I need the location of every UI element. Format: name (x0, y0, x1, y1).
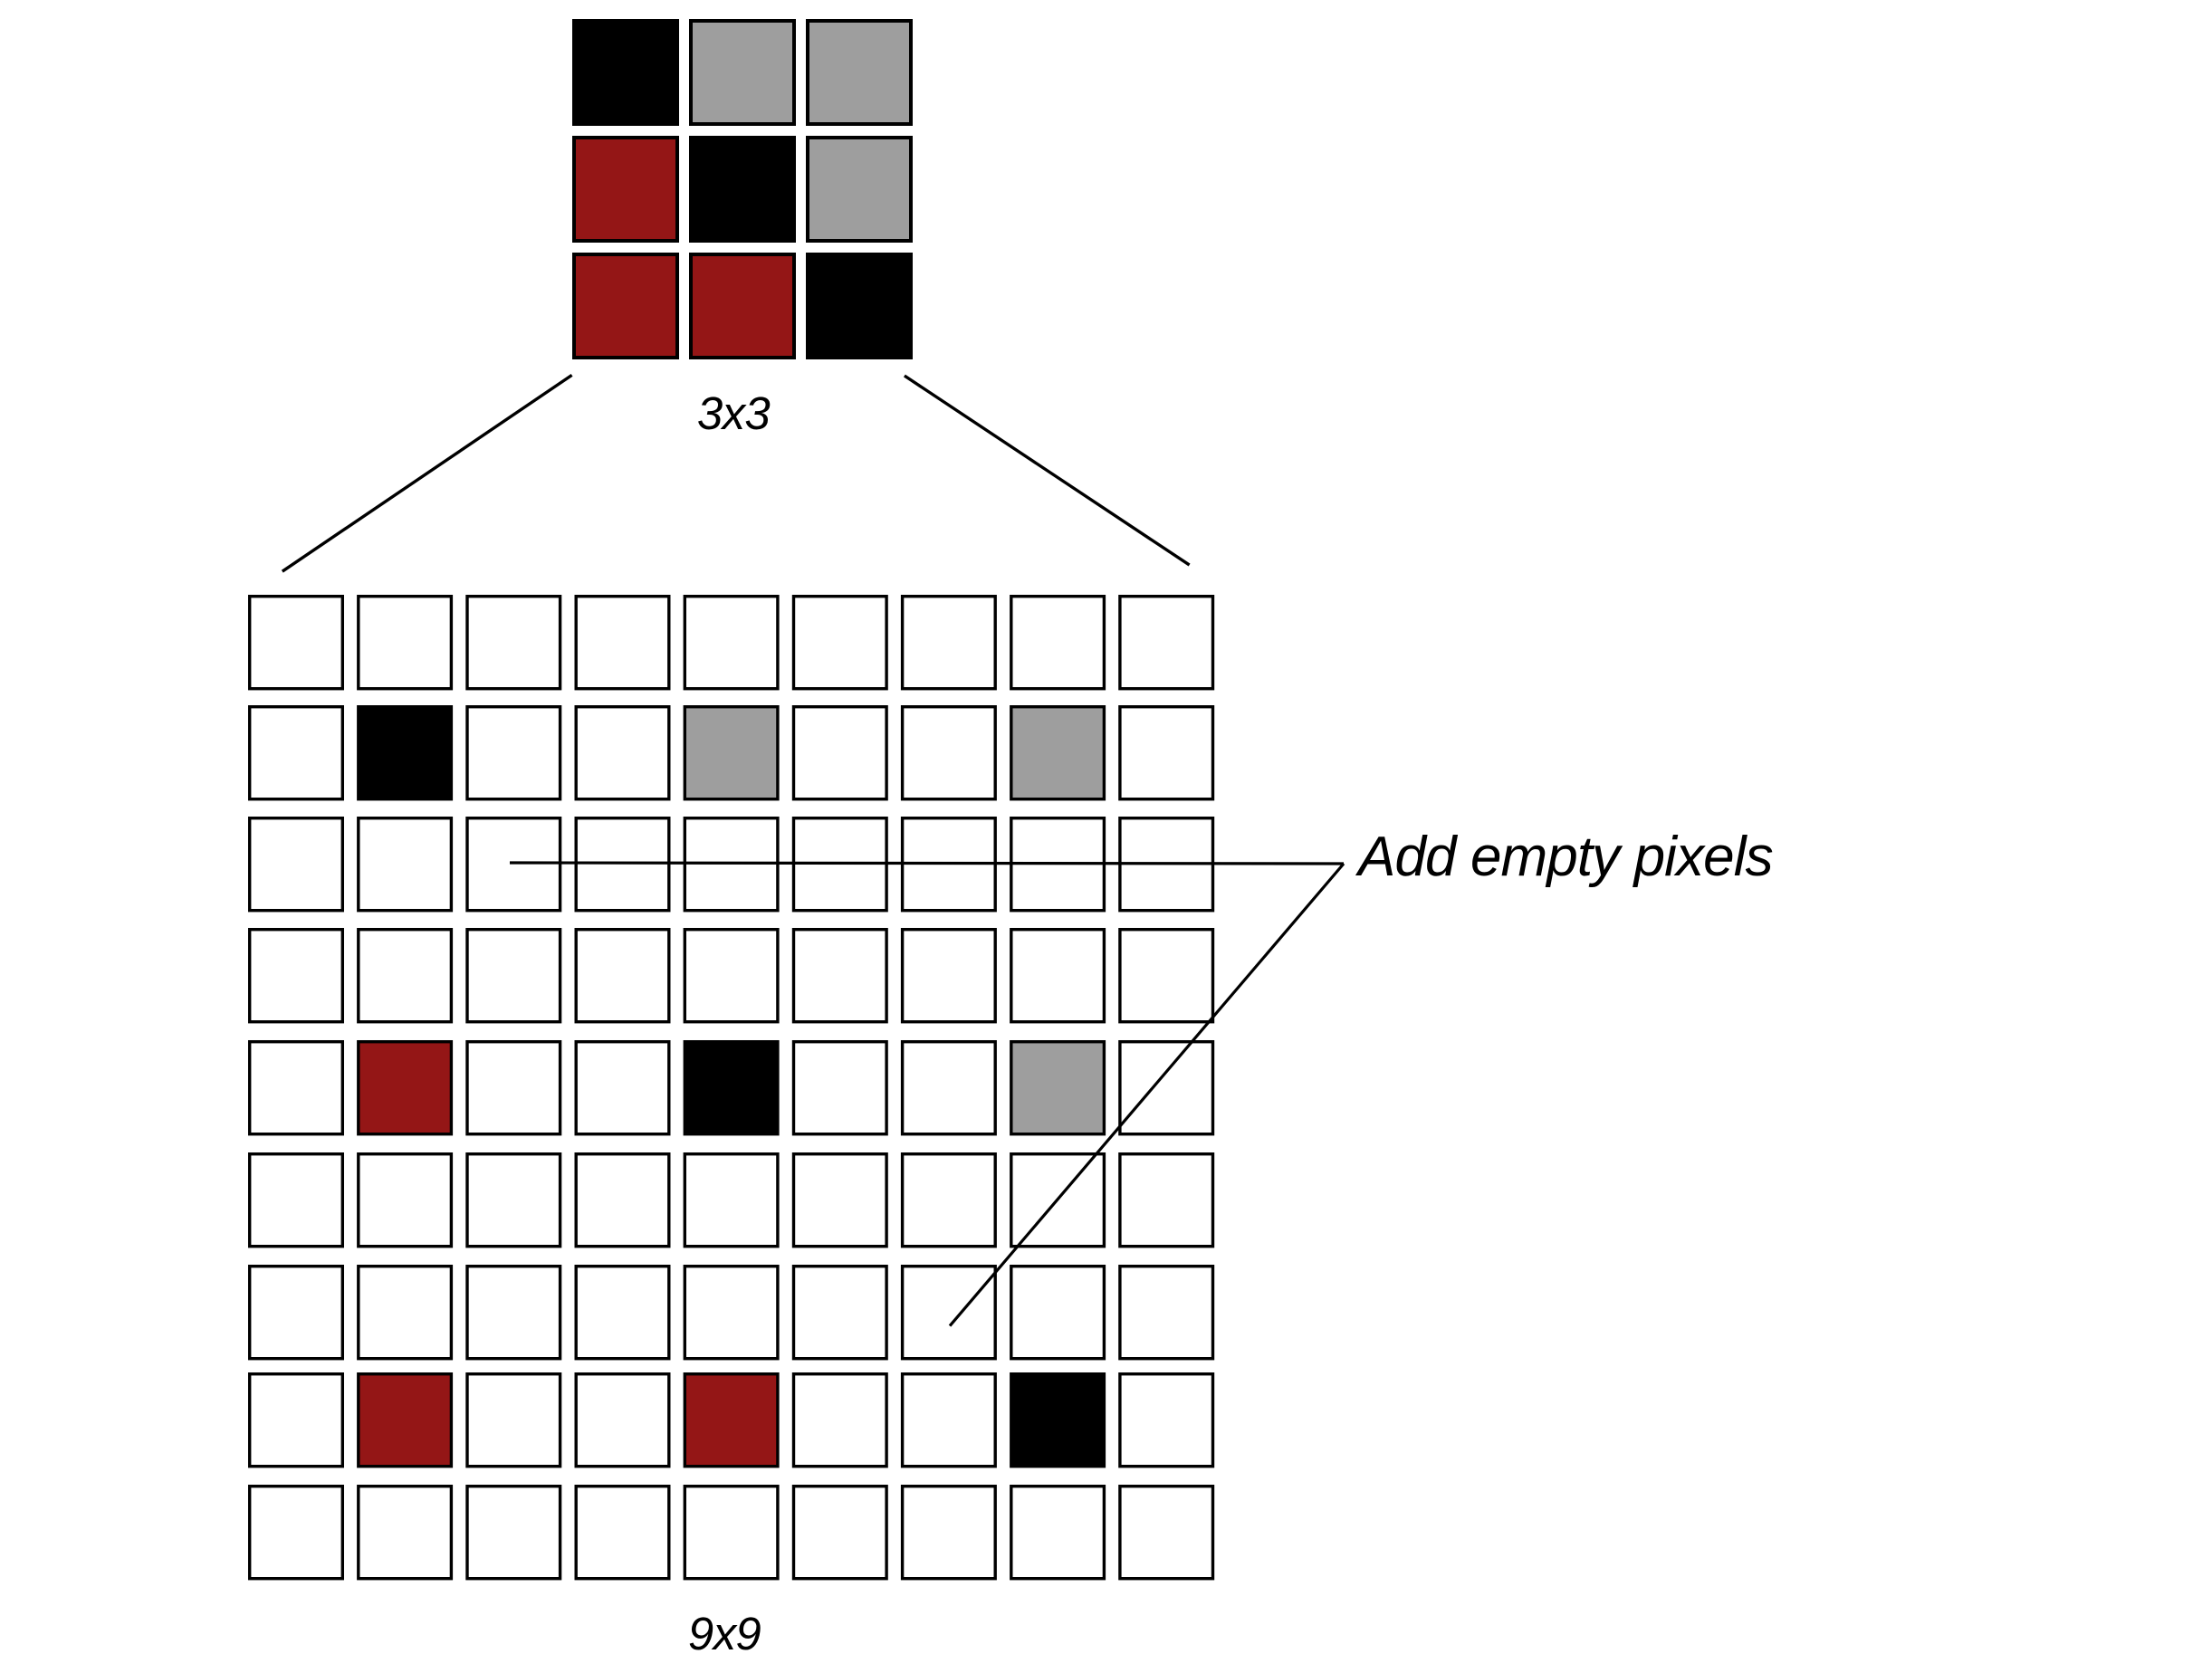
svg-text:9x9: 9x9 (688, 1608, 761, 1659)
svg-text:3x3: 3x3 (697, 387, 770, 439)
svg-text:Add empty pixels: Add empty pixels (1355, 826, 1773, 888)
